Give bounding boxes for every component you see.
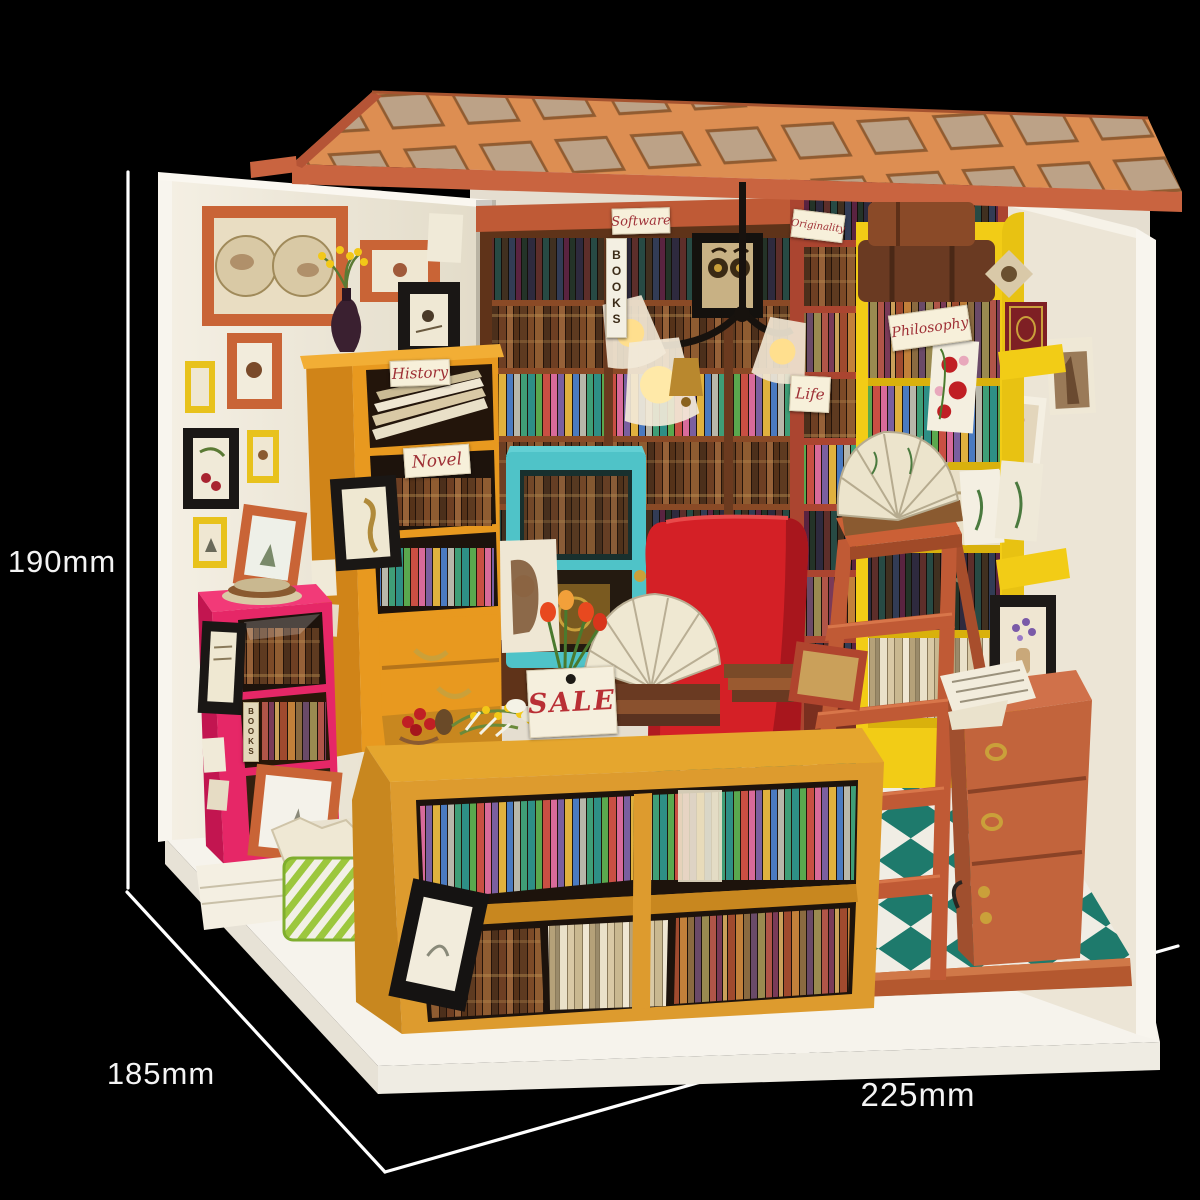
sign-novel-label: Novel	[411, 449, 462, 472]
roof-left-overhang	[250, 156, 297, 178]
sign-novel: Novel	[403, 444, 471, 479]
product-photo-stage: 190mm 185mm 225mm History Novel Software…	[0, 0, 1200, 1200]
side-card-1	[202, 737, 226, 772]
small-yellow-frame-2	[247, 430, 279, 483]
seahorse-frame	[330, 475, 402, 571]
pink-side-black-frame	[198, 621, 247, 715]
black-frame-bird	[398, 282, 460, 358]
sign-software-label: Software	[611, 213, 671, 230]
sign-originality-label: Originality	[790, 217, 845, 235]
small-yellow-frame-3	[193, 517, 227, 568]
drawer-knob-1	[978, 886, 990, 898]
dimension-label-width: 225mm	[854, 1076, 982, 1114]
dimension-label-depth: 185mm	[102, 1056, 220, 1092]
miniature-room-illustration	[0, 0, 1200, 1200]
books-spine-pink-label: BOOKS	[247, 707, 256, 757]
orange-frame-heart	[227, 333, 282, 409]
books-spine-center: BOOKS	[606, 238, 627, 338]
sign-philosophy-label: Philosophy	[891, 315, 970, 342]
sign-history-label: History	[392, 363, 449, 383]
sale-sign-clip	[566, 674, 577, 685]
suitcase-stack	[858, 202, 995, 302]
books-spine-center-label: BOOKS	[610, 248, 624, 328]
sign-software: Software	[612, 207, 671, 235]
black-frame-cherries	[183, 428, 239, 509]
sign-sale: SALE	[526, 666, 617, 739]
small-yellow-frame-1	[185, 361, 215, 413]
dimension-label-height: 190mm	[6, 544, 118, 580]
striped-basket	[272, 818, 362, 940]
owl-picture-frame	[692, 233, 763, 318]
cabinet-knob	[634, 570, 646, 582]
sign-life: Life	[789, 375, 831, 413]
strawberry-floral-card	[927, 339, 979, 434]
renaissance-portrait-card	[498, 539, 560, 653]
sign-sale-label: SALE	[527, 684, 617, 720]
drawer-knob-2	[980, 912, 992, 924]
sign-history: History	[390, 359, 451, 387]
sign-life-label: Life	[795, 384, 825, 404]
books-spine-pink-shelf: BOOKS	[243, 702, 259, 762]
side-card-2	[207, 779, 230, 811]
world-map-frame	[202, 206, 348, 326]
